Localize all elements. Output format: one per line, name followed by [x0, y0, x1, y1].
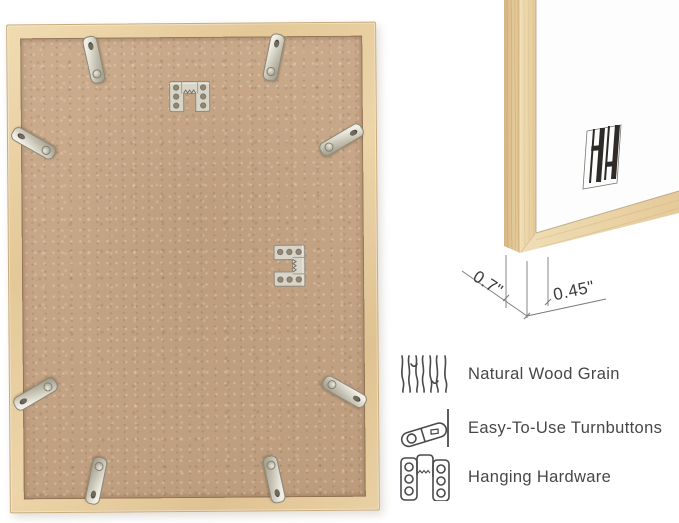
- product-infographic: 0.7" 0.45" Natural Wood Grain: [0, 0, 679, 523]
- feature-label: Hanging Hardware: [468, 468, 611, 487]
- face-width-measurement-label: 0.45": [552, 277, 597, 304]
- turnbutton-icon: [398, 407, 452, 449]
- feature-label: Easy-To-Use Turnbuttons: [468, 419, 662, 438]
- hanging-hardware-icon: [398, 453, 452, 501]
- feature-item-turnbuttons: Easy-To-Use Turnbuttons: [398, 404, 670, 452]
- feature-label: Natural Wood Grain: [468, 365, 620, 384]
- wood-grain-icon: [398, 355, 452, 393]
- frame-back-photo: [6, 22, 380, 514]
- frame-corner-detail: 0.7" 0.45": [440, 0, 679, 330]
- feature-item-hanging-hardware: Hanging Hardware: [398, 453, 670, 501]
- sawtooth-hanger: [273, 244, 306, 287]
- sawtooth-hanger: [169, 80, 211, 113]
- depth-measurement-label: 0.7": [470, 267, 507, 300]
- feature-item-wood-grain: Natural Wood Grain: [398, 350, 670, 398]
